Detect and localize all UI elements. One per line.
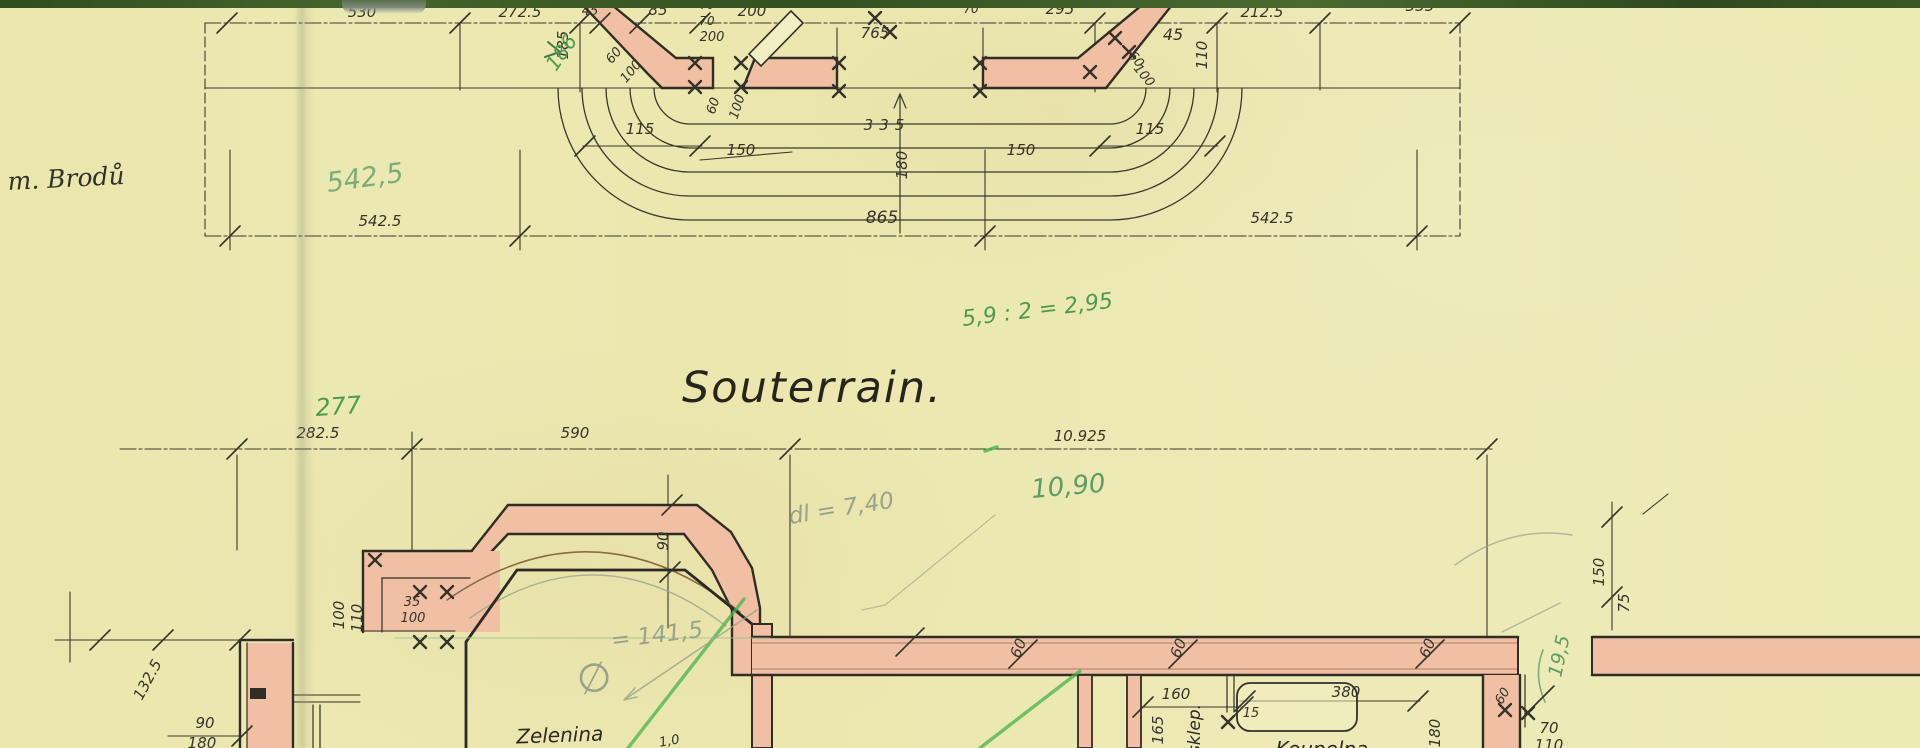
dim-label-180-left: 180 [188,734,217,748]
dim-label-45-door: 45 [1163,25,1183,44]
paper-fold-line [294,0,314,748]
dim-label-110-bottom: 110 [1535,736,1564,748]
zelenina-room-outline [466,570,752,748]
handwritten-diameter-symbol: ∅ [573,653,617,705]
handwritten-19-5: 19,5 [1544,633,1574,679]
dim-label-100-vert: 100 [330,601,348,630]
dim-label-200-a: 200 [700,30,725,45]
handwritten-10-90: 10,90 [1030,469,1107,505]
dim-label-15: 15 [1243,706,1260,721]
dim-label-110: 110 [1193,41,1211,70]
handwritten-calc: 5,9 : 2 = 2,95 [961,289,1115,332]
dim-label-335-center: 335 [864,116,911,134]
entrance-stair-detail: 530 272.5 185 45 85 70 70 200 200 765 70… [205,0,1460,250]
handwritten-542-5: 542,5 [325,157,406,198]
room-label-sklep: sklep. [1185,704,1205,748]
dim-label-380: 380 [1332,683,1361,701]
room-label-koupelna: Koupelna [1276,737,1369,748]
dim-label-100-step: 100 [727,93,749,121]
dim-label-35: 35 [404,595,421,610]
handwritten-141-5: = 141,5 [610,617,705,654]
dim-label-150-right: 150 [1590,558,1608,587]
dim-label-90-left: 90 [195,714,214,732]
blueprint-drawing: 530 272.5 185 45 85 70 70 200 200 765 70… [0,0,1920,748]
dim-label-60-step: 60 [704,96,723,116]
handwritten-owner-note: m. Brodů [7,161,125,196]
dim-label-590: 590 [561,424,590,442]
souterrain-floor-plan: 282.5 590 10.925 35 100 100 110 132.5 90… [55,424,1920,748]
dim-label-180: 180 [893,151,911,180]
dim-label-115-left: 115 [626,120,655,138]
handwritten-186: 186 [540,30,582,75]
dim-label-542-5-right: 542.5 [1251,209,1294,227]
dim-label-110-vert: 110 [348,604,366,633]
scanned-blueprint-page: 530 272.5 185 45 85 70 70 200 200 765 70… [0,0,1920,748]
green-brace [1538,650,1545,702]
partition-wall-a [1078,675,1092,748]
green-ruled-line-b [980,671,1080,748]
dim-label-90-bay: 90 [654,531,672,550]
dim-label-70: 70 [1539,719,1558,737]
note-1-0: 1,0 [658,732,681,748]
handwritten-277: 277 [314,391,362,422]
dim-label-160: 160 [1162,685,1191,703]
dim-label-542-5-left: 542.5 [359,212,402,230]
dim-label-132-5: 132.5 [130,656,166,702]
left-pier-wall [363,551,500,632]
dim-label-75: 75 [1615,593,1633,612]
dim-label-865: 865 [866,208,898,228]
room-label-zelenina: Zelenina [515,721,604,748]
dim-label-165: 165 [1149,716,1167,745]
scan-edge-stain [342,0,426,14]
dim-label-100-pier: 100 [401,611,426,626]
door-threshold [250,688,266,699]
scan-edge-strip [0,0,1920,8]
dim-label-150-left: 150 [727,141,756,159]
dim-label-180-right: 180 [1426,719,1444,748]
handwritten-dl-7-40: dl = 7,40 [787,488,896,530]
page-title: Souterrain. [682,363,943,413]
dim-label-150-right: 150 [1007,141,1036,159]
dim-label-10-925: 10.925 [1054,427,1107,445]
dim-label-115-right: 115 [1136,120,1165,138]
